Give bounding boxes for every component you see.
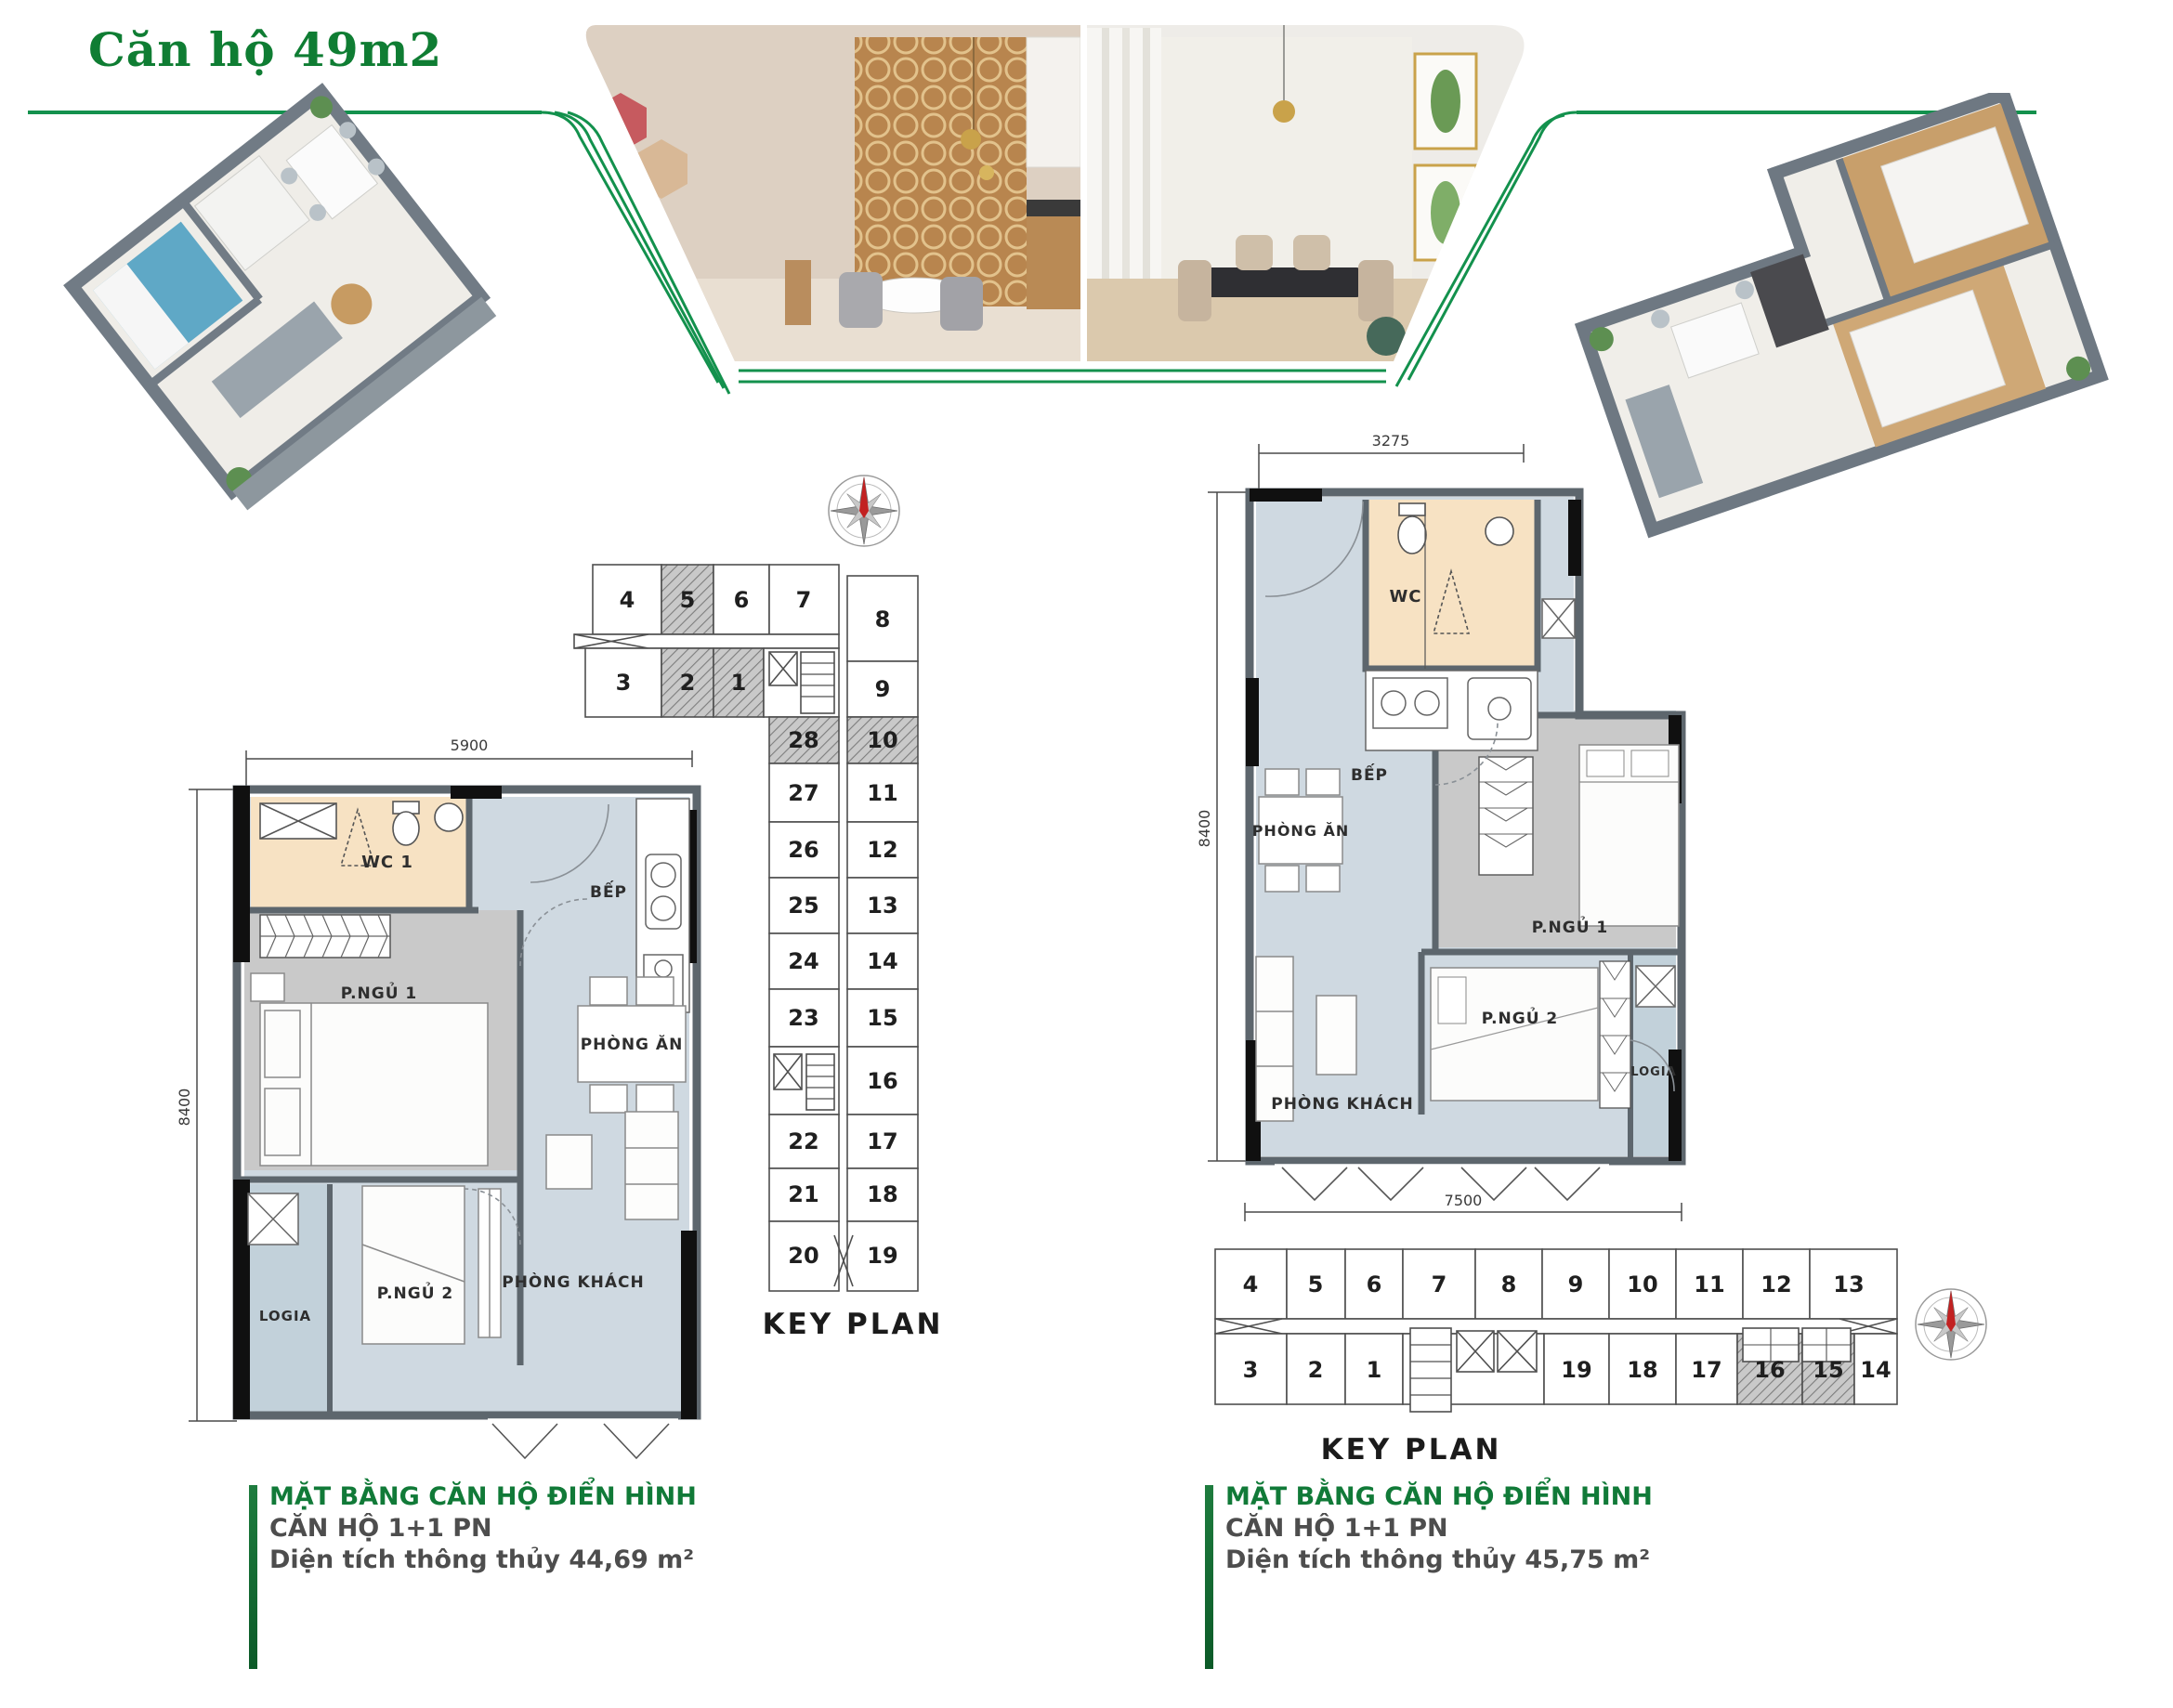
svg-text:24: 24 xyxy=(788,948,818,974)
compass-rose-icon xyxy=(1912,1285,1990,1363)
svg-text:7: 7 xyxy=(1432,1271,1447,1297)
svg-text:17: 17 xyxy=(867,1128,897,1154)
caption-right-line3: Diện tích thông thủy 45,75 m² xyxy=(1225,1545,1725,1576)
svg-text:5: 5 xyxy=(1308,1271,1324,1297)
svg-text:28: 28 xyxy=(788,727,818,753)
caption-right: MẶT BẰNG CĂN HỘ ĐIỂN HÌNH CĂN HỘ 1+1 PN … xyxy=(1205,1481,1725,1576)
dim-left-label-right: 8400 xyxy=(1196,810,1213,848)
svg-text:18: 18 xyxy=(1627,1357,1657,1383)
caption-right-bar xyxy=(1205,1485,1213,1669)
floor-plan-right: 3275 8400 7500 xyxy=(1172,399,1730,1235)
caption-left: MẶT BẰNG CĂN HỘ ĐIỂN HÌNH CĂN HỘ 1+1 PN … xyxy=(249,1481,769,1576)
svg-text:6: 6 xyxy=(734,587,750,613)
room-label-logia-right: LOGIA xyxy=(1630,1065,1676,1079)
room-label-wc-right: WC xyxy=(1389,587,1421,606)
svg-text:21: 21 xyxy=(788,1181,818,1207)
svg-text:10: 10 xyxy=(1627,1271,1657,1297)
dim-top-label-right: 3275 xyxy=(1372,432,1410,450)
svg-text:25: 25 xyxy=(788,893,818,919)
room-label-bedroom1: P.NGỦ 1 xyxy=(341,981,418,1003)
svg-text:27: 27 xyxy=(788,780,818,806)
logia-washer-right xyxy=(1636,966,1675,1007)
dim-left-label: 8400 xyxy=(176,1089,193,1127)
kitchen-counter-right xyxy=(1366,671,1538,750)
svg-text:3: 3 xyxy=(1243,1357,1259,1383)
room-label-bedroom1-right: P.NGỦ 1 xyxy=(1532,915,1609,937)
apartment-3d-isometric-left xyxy=(28,56,520,529)
room-label-kitchen-right: BẾP xyxy=(1351,763,1388,785)
compass-rose-icon xyxy=(825,472,903,550)
key-plan-right-title: KEY PLAN xyxy=(1290,1433,1532,1467)
svg-text:14: 14 xyxy=(1860,1357,1891,1383)
svg-text:11: 11 xyxy=(1694,1271,1724,1297)
svg-text:2: 2 xyxy=(680,670,696,696)
svg-text:4: 4 xyxy=(620,587,635,613)
svg-text:13: 13 xyxy=(867,893,897,919)
shaft-right xyxy=(1542,599,1575,638)
svg-text:19: 19 xyxy=(1561,1357,1591,1383)
svg-text:14: 14 xyxy=(867,948,897,974)
svg-text:13: 13 xyxy=(1833,1271,1864,1297)
svg-text:8: 8 xyxy=(1501,1271,1517,1297)
svg-text:16: 16 xyxy=(1754,1357,1785,1383)
dim-top-label: 5900 xyxy=(451,737,489,754)
brochure-page: Căn hộ 49m2 xyxy=(0,0,2173,1708)
svg-text:15: 15 xyxy=(1813,1357,1843,1383)
key-plan-left: 4 5 6 7 3 2 1 8 9 28 10 27 11 26 12 25 1… xyxy=(557,548,948,1365)
svg-text:12: 12 xyxy=(867,837,897,863)
room-label-living-right: PHÒNG KHÁCH xyxy=(1271,1093,1414,1114)
svg-text:8: 8 xyxy=(875,606,891,632)
key-plan-left-title: KEY PLAN xyxy=(732,1308,974,1341)
caption-left-line2: CĂN HỘ 1+1 PN xyxy=(269,1513,769,1545)
svg-text:22: 22 xyxy=(788,1128,818,1154)
dim-bottom-label-right: 7500 xyxy=(1445,1192,1483,1209)
logia-washer xyxy=(248,1193,298,1245)
svg-text:1: 1 xyxy=(731,670,747,696)
svg-text:19: 19 xyxy=(867,1243,897,1269)
room-label-dining-right: PHÒNG ĂN xyxy=(1252,822,1350,840)
svg-text:1: 1 xyxy=(1367,1357,1382,1383)
kitchen-dining-render-photo xyxy=(557,19,1092,367)
svg-text:5: 5 xyxy=(680,587,696,613)
caption-right-line1: MẶT BẰNG CĂN HỘ ĐIỂN HÌNH xyxy=(1225,1481,1725,1513)
svg-text:7: 7 xyxy=(796,587,812,613)
svg-text:26: 26 xyxy=(788,837,818,863)
room-label-bedroom2-right: P.NGỦ 2 xyxy=(1482,1006,1559,1028)
svg-text:2: 2 xyxy=(1308,1357,1324,1383)
bed-bedroom2 xyxy=(362,1186,501,1344)
svg-text:17: 17 xyxy=(1691,1357,1721,1383)
svg-text:23: 23 xyxy=(788,1005,818,1031)
caption-left-line1: MẶT BẰNG CĂN HỘ ĐIỂN HÌNH xyxy=(269,1481,769,1513)
bay-windows xyxy=(488,1419,678,1458)
svg-text:12: 12 xyxy=(1761,1271,1791,1297)
svg-text:11: 11 xyxy=(867,780,897,806)
living-dining-render-photo xyxy=(1082,19,1538,367)
room-label-bedroom2: P.NGỦ 2 xyxy=(377,1281,454,1303)
svg-text:3: 3 xyxy=(616,670,632,696)
bay-windows-right xyxy=(1275,1165,1609,1200)
wardrobe-bedroom1 xyxy=(260,915,390,958)
caption-left-line3: Diện tích thông thủy 44,69 m² xyxy=(269,1545,769,1576)
svg-text:18: 18 xyxy=(867,1181,897,1207)
svg-text:20: 20 xyxy=(788,1243,818,1269)
svg-text:10: 10 xyxy=(867,727,897,753)
caption-right-line2: CĂN HỘ 1+1 PN xyxy=(1225,1513,1725,1545)
svg-text:4: 4 xyxy=(1243,1271,1259,1297)
svg-text:15: 15 xyxy=(867,1005,897,1031)
bedroom2-right xyxy=(1431,961,1630,1108)
caption-left-bar xyxy=(249,1485,257,1669)
room-label-wc1: WC 1 xyxy=(361,853,413,872)
svg-text:6: 6 xyxy=(1367,1271,1382,1297)
svg-text:16: 16 xyxy=(867,1068,897,1094)
svg-text:9: 9 xyxy=(875,676,891,702)
svg-text:9: 9 xyxy=(1568,1271,1584,1297)
room-label-logia: LOGIA xyxy=(259,1308,311,1324)
